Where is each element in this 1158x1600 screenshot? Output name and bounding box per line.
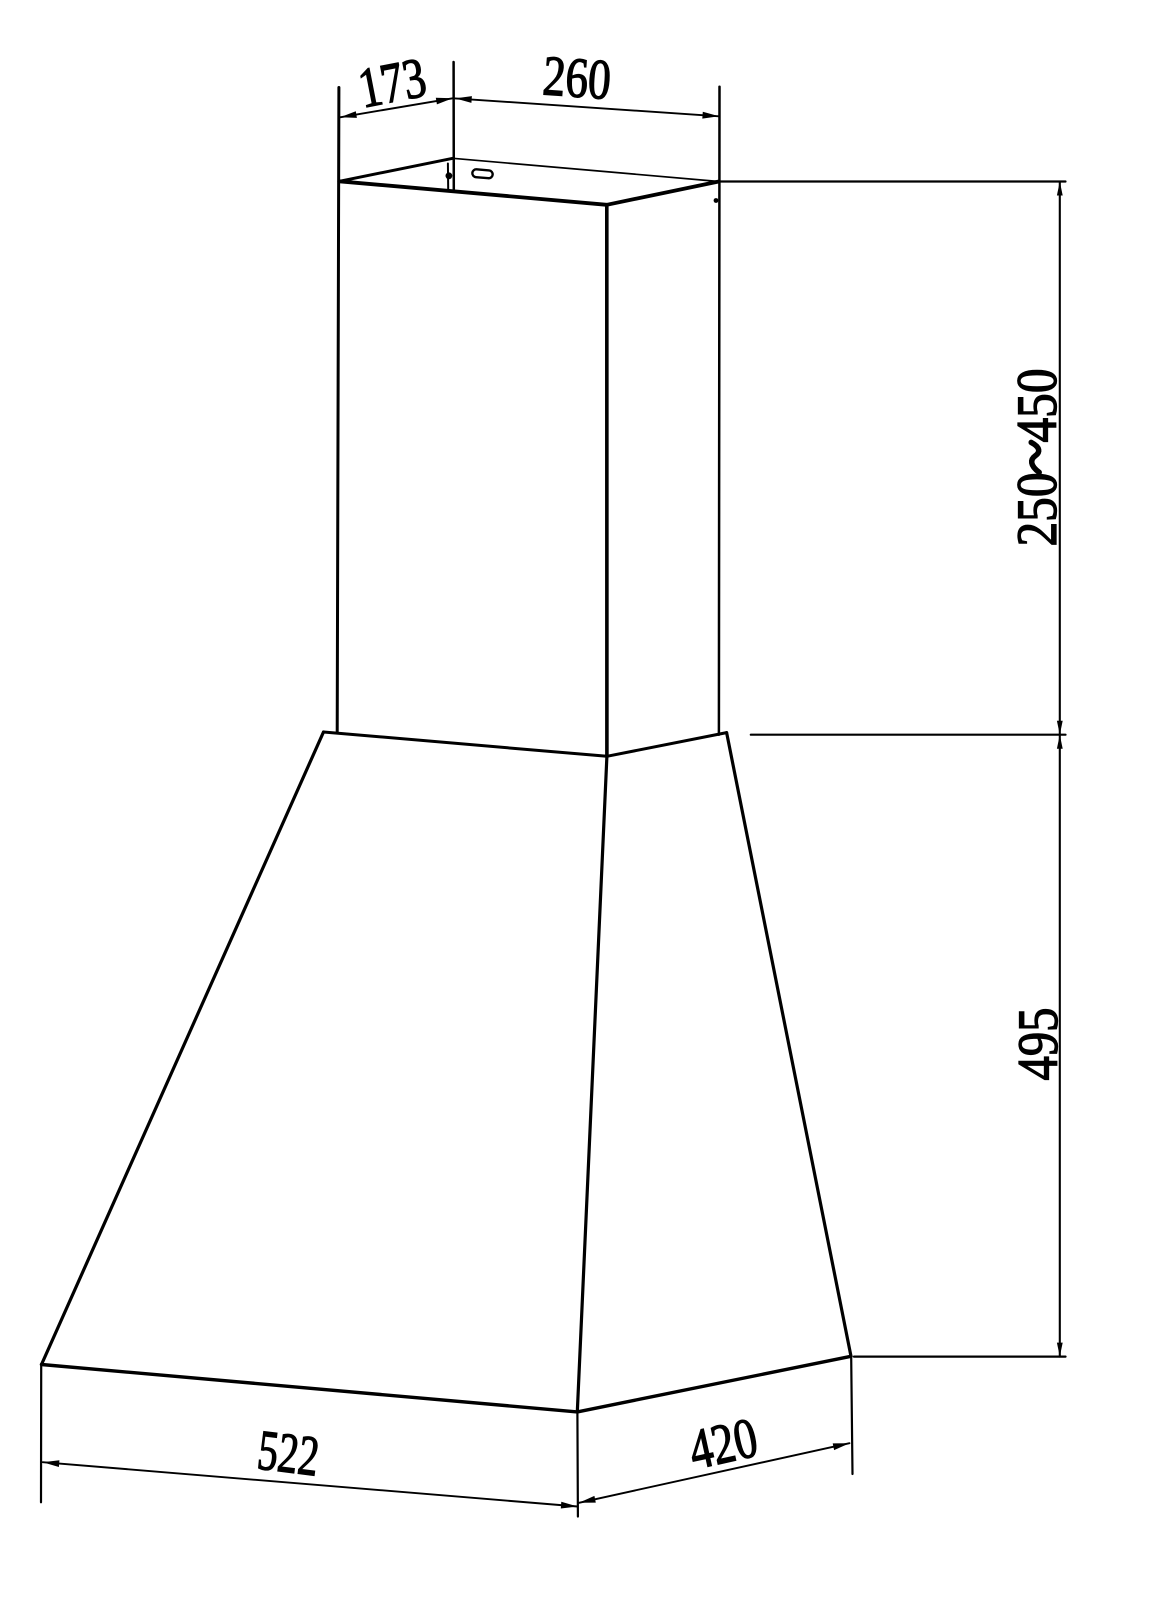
svg-text:250: 250 bbox=[1006, 473, 1069, 547]
svg-text:260: 260 bbox=[541, 44, 613, 112]
svg-text:495: 495 bbox=[1007, 1008, 1070, 1081]
svg-text:450: 450 bbox=[1006, 369, 1069, 443]
svg-text:522: 522 bbox=[254, 1419, 322, 1489]
svg-text:420: 420 bbox=[683, 1406, 763, 1482]
svg-text:173: 173 bbox=[353, 46, 431, 121]
